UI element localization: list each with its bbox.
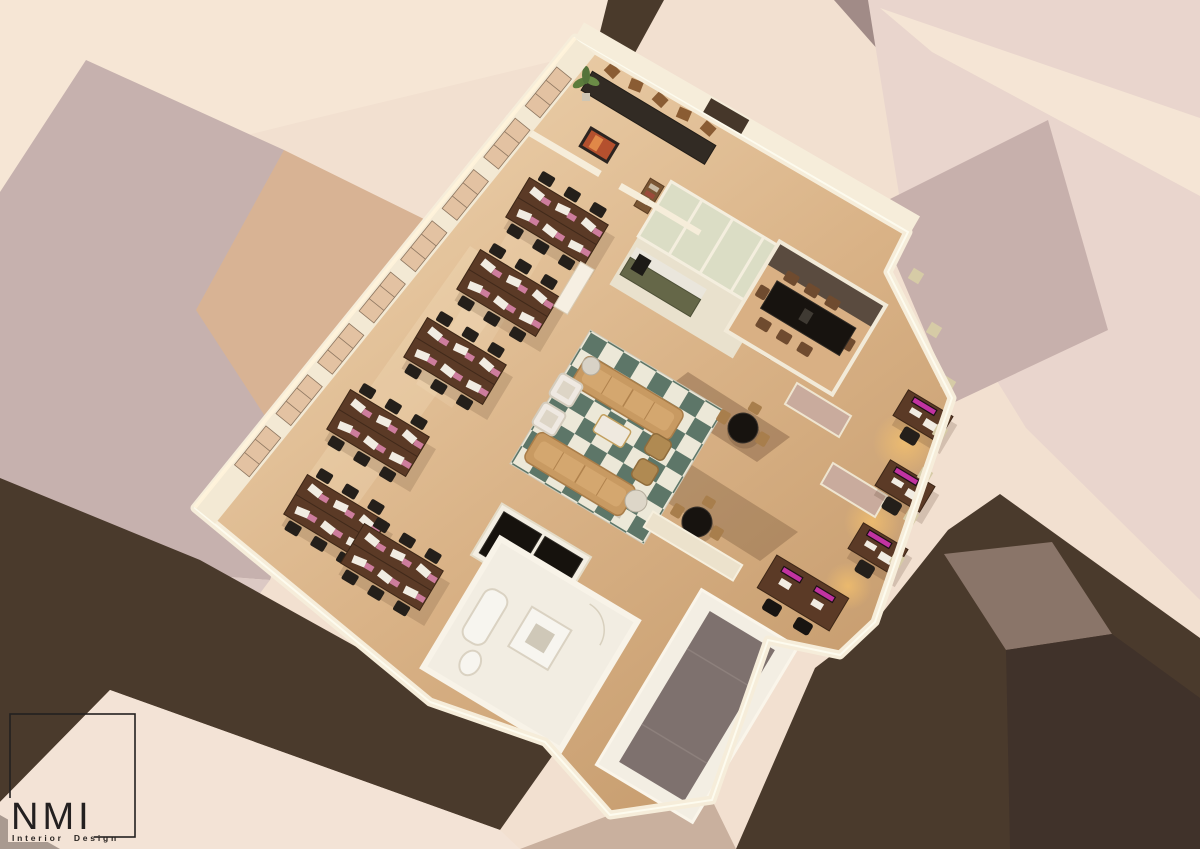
scene-svg: NMI Interior Design	[0, 0, 1200, 849]
side-table-2	[625, 490, 647, 512]
logo-tagline: Interior Design	[12, 833, 119, 843]
side-table-1	[582, 357, 600, 375]
logo-brand-name: NMI	[11, 796, 93, 838]
render-canvas: NMI Interior Design	[0, 0, 1200, 849]
